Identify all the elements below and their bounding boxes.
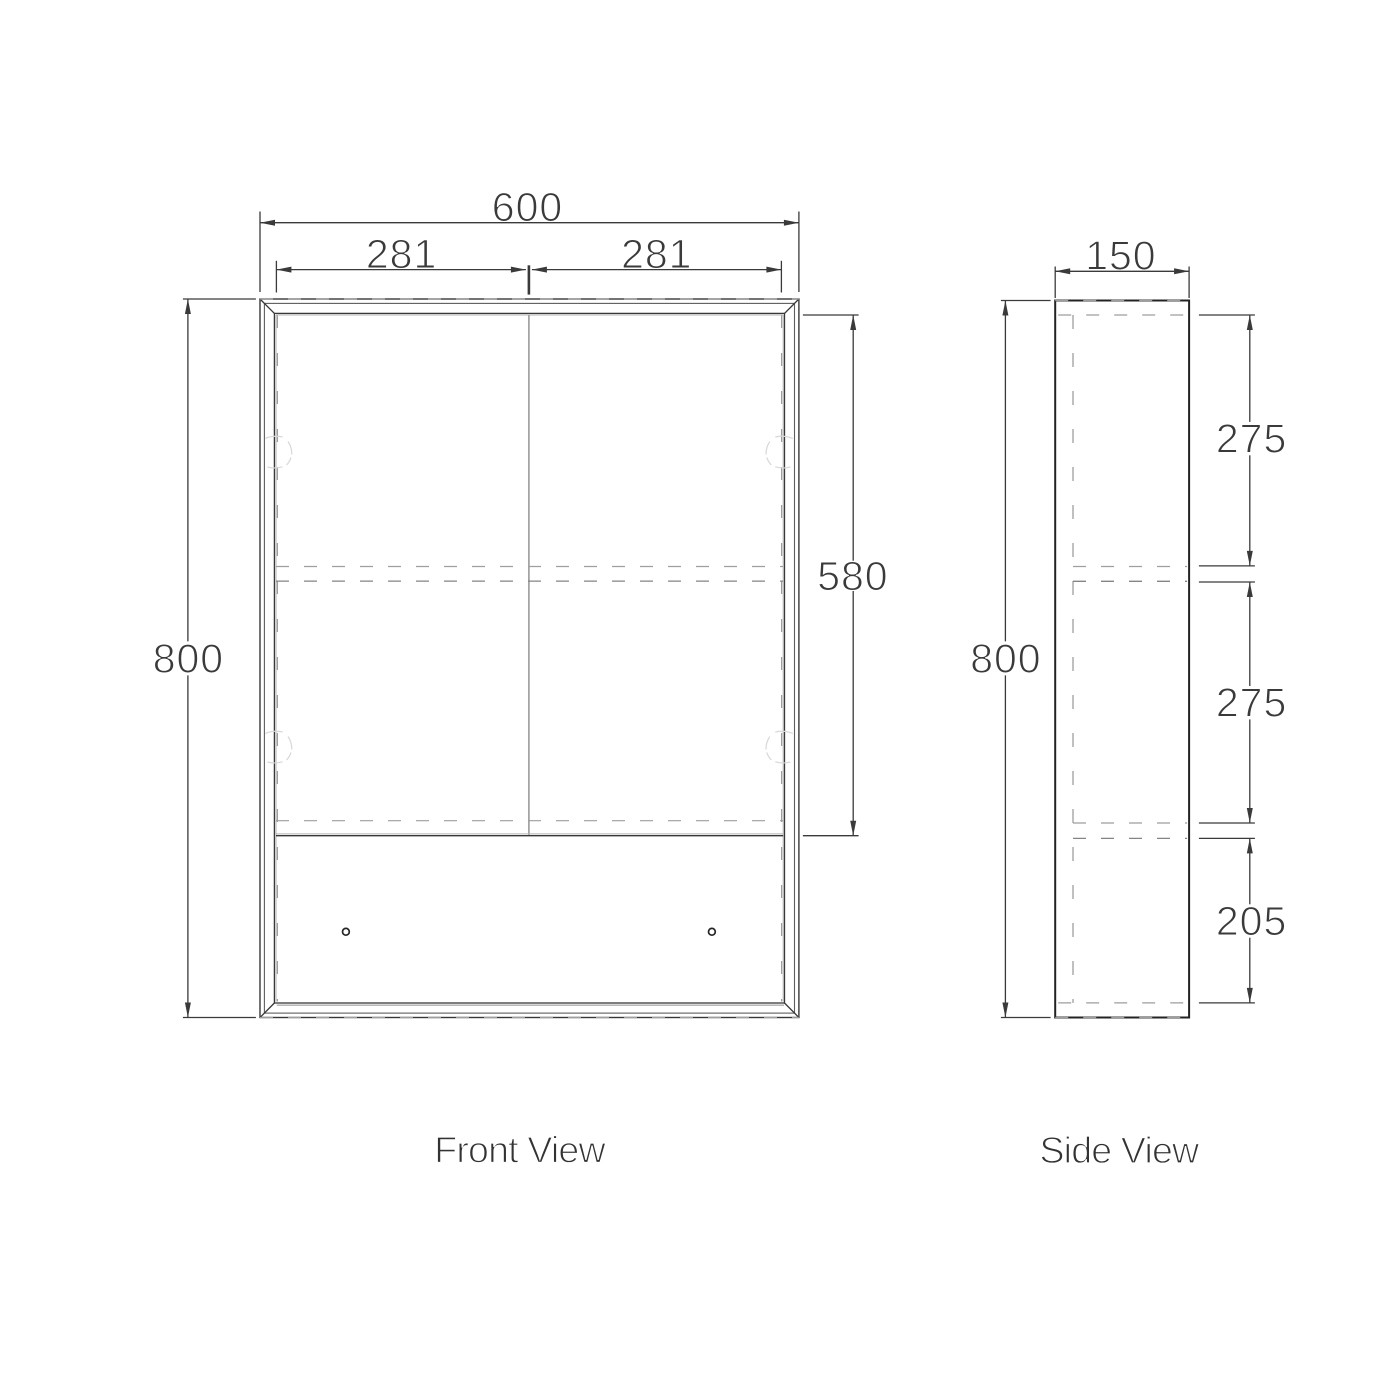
svg-text:800: 800 (970, 636, 1041, 682)
svg-text:205: 205 (1216, 898, 1287, 944)
svg-text:281: 281 (621, 231, 692, 277)
svg-text:275: 275 (1216, 680, 1287, 726)
svg-text:Front View: Front View (434, 1128, 606, 1170)
svg-text:275: 275 (1216, 416, 1287, 462)
svg-text:150: 150 (1085, 233, 1156, 279)
svg-text:Side View: Side View (1039, 1129, 1200, 1171)
svg-text:281: 281 (366, 231, 437, 277)
svg-text:600: 600 (492, 184, 563, 230)
svg-text:580: 580 (817, 553, 888, 599)
svg-text:800: 800 (153, 636, 224, 682)
